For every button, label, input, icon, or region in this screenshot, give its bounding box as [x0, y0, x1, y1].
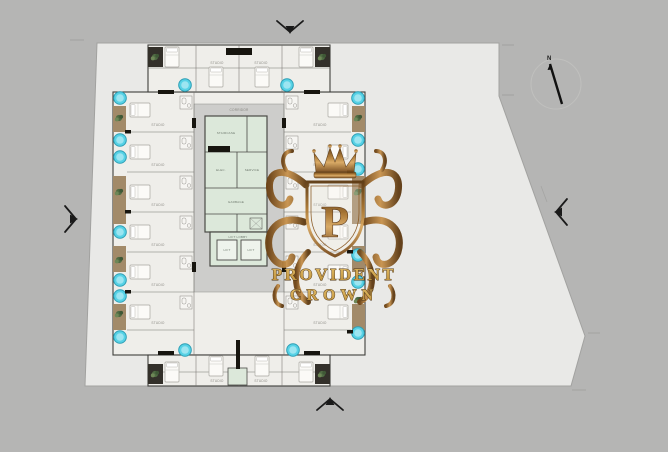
corridor-label: CORRIDOR — [230, 108, 249, 112]
chevron-down-icon — [277, 21, 303, 34]
bottom-service-room — [228, 368, 247, 385]
unit-label: STUDIO — [151, 203, 165, 207]
bathtub-icon — [287, 344, 300, 357]
watermark-line1: PROVIDENT — [272, 265, 397, 284]
bathtub-icon — [114, 134, 127, 147]
services-core: STAIRCASE ELEC. SERVICE GARBAGE LIFT LOB… — [205, 116, 267, 266]
unit-label: STUDIO — [210, 379, 224, 383]
top-shaft — [226, 48, 252, 55]
service-right-label: SERVICE — [245, 168, 260, 172]
chevron-right-icon — [65, 206, 78, 232]
compass-north-label: N — [547, 56, 551, 62]
party-wall — [236, 340, 240, 369]
service-left-label: ELEC. — [216, 168, 226, 172]
unit-label: STUDIO — [151, 321, 165, 325]
bathtub-icon — [114, 290, 127, 303]
floor-plan-screenshot: STAIRCASE ELEC. SERVICE GARBAGE LIFT LOB… — [0, 0, 668, 452]
bathtub-icon — [114, 226, 127, 239]
bathtub-icon — [179, 79, 192, 92]
unit-label: STUDIO — [151, 283, 165, 287]
unit-label: STUDIO — [313, 321, 327, 325]
bathtub-icon — [352, 327, 365, 340]
unit-label: STUDIO — [254, 379, 268, 383]
unit-label: STUDIO — [151, 123, 165, 127]
lift-left-label: LIFT — [224, 248, 231, 252]
unit-label: STUDIO — [151, 243, 165, 247]
bathtub-icon — [179, 344, 192, 357]
lift-right-label: LIFT — [248, 248, 255, 252]
bathtub-icon — [114, 151, 127, 164]
bathtub-icon — [114, 92, 127, 105]
bathtub-icon — [352, 92, 365, 105]
chevron-left-icon — [554, 199, 567, 225]
north-compass: N — [531, 56, 581, 109]
compass-needle — [550, 64, 562, 104]
unit-label: STUDIO — [254, 61, 268, 65]
bathtub-icon — [281, 79, 294, 92]
unit-label: STUDIO — [151, 163, 165, 167]
chevron-up-icon — [317, 397, 343, 410]
monogram-letter: P — [321, 196, 349, 247]
unit-label: STUDIO — [210, 61, 224, 65]
bathtub-icon — [114, 274, 127, 287]
unit-label: STUDIO — [313, 123, 327, 127]
stair-flight — [208, 146, 230, 152]
lift-lobby-label: LIFT LOBBY — [229, 235, 248, 239]
floor-plan-canvas: STAIRCASE ELEC. SERVICE GARBAGE LIFT LOB… — [0, 0, 668, 452]
staircase-label: STAIRCASE — [217, 131, 236, 135]
bathtub-icon — [352, 134, 365, 147]
bathtub-icon — [114, 331, 127, 344]
watermark-line2: CROWN — [290, 287, 378, 304]
garbage-label: GARBAGE — [228, 200, 244, 204]
